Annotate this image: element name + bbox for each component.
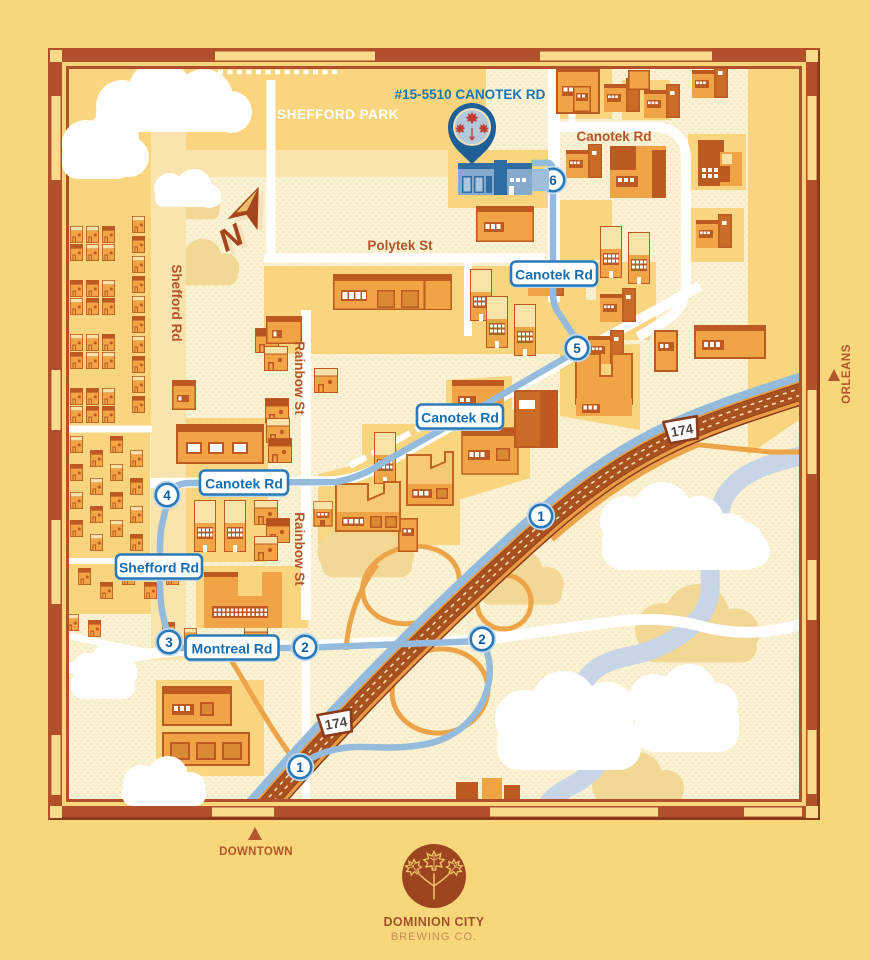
svg-text:Canotek Rd: Canotek Rd bbox=[515, 267, 593, 283]
svg-text:4: 4 bbox=[163, 488, 171, 503]
svg-text:1: 1 bbox=[537, 509, 545, 524]
svg-text:SHEFFORD PARK: SHEFFORD PARK bbox=[277, 107, 399, 122]
svg-text:Polytek St: Polytek St bbox=[367, 238, 433, 253]
svg-text:2: 2 bbox=[301, 640, 309, 655]
svg-text:ORLEANS: ORLEANS bbox=[841, 344, 853, 404]
svg-text:Canotek Rd: Canotek Rd bbox=[421, 410, 499, 426]
svg-text:Rainbow St: Rainbow St bbox=[292, 512, 307, 586]
svg-text:3: 3 bbox=[165, 635, 173, 650]
svg-text:BREWING CO.: BREWING CO. bbox=[391, 931, 477, 943]
svg-text:1: 1 bbox=[296, 760, 304, 775]
svg-text:DOMINION CITY: DOMINION CITY bbox=[383, 915, 484, 929]
svg-text:Montreal Rd: Montreal Rd bbox=[192, 641, 273, 657]
svg-text:6: 6 bbox=[549, 173, 557, 188]
svg-text:#15-5510 CANOTEK RD: #15-5510 CANOTEK RD bbox=[395, 87, 546, 102]
svg-text:Canotek Rd: Canotek Rd bbox=[576, 129, 651, 144]
svg-text:Rainbow St: Rainbow St bbox=[292, 341, 307, 415]
svg-text:Shefford Rd: Shefford Rd bbox=[169, 264, 184, 341]
svg-text:Canotek Rd: Canotek Rd bbox=[205, 476, 283, 492]
svg-text:Shefford Rd: Shefford Rd bbox=[119, 560, 199, 576]
svg-text:5: 5 bbox=[573, 341, 581, 356]
svg-text:DOWNTOWN: DOWNTOWN bbox=[219, 846, 293, 858]
svg-text:2: 2 bbox=[478, 632, 486, 647]
